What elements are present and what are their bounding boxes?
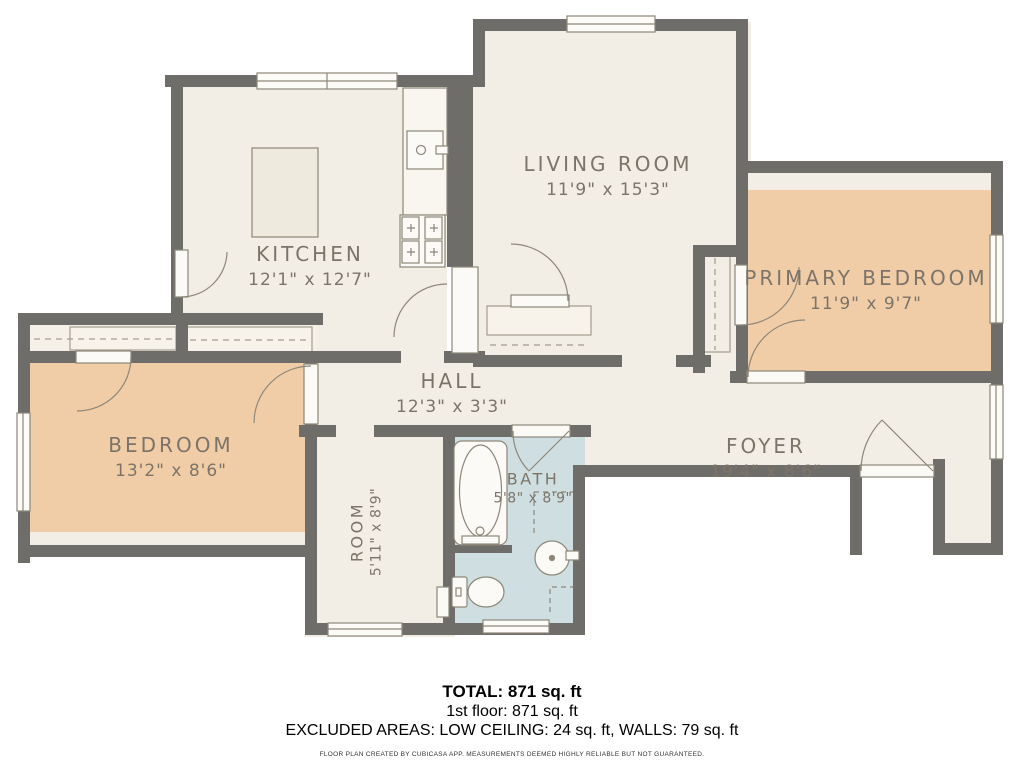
room-label-kitchen: KITCHEN 12'1" x 12'7" xyxy=(248,242,372,290)
kitchen-dims: 12'1" x 12'7" xyxy=(248,270,372,290)
room-dims: 5'11" x 8'9" xyxy=(369,488,385,576)
room-side-door xyxy=(437,587,449,617)
room-label-room: ROOM 5'11" x 8'9" xyxy=(348,488,385,576)
room-label-bath: BATH 5'8" x 8'9" xyxy=(494,470,573,507)
kitchen-island xyxy=(252,148,318,237)
hall-name: HALL xyxy=(396,369,508,393)
bedroom-window xyxy=(17,413,30,511)
kitchen-window xyxy=(257,73,397,89)
stove xyxy=(400,215,445,267)
room-window xyxy=(328,623,402,636)
floor-plan-page: KITCHEN 12'1" x 12'7" LIVING ROOM 11'9" … xyxy=(0,0,1024,768)
room-label-foyer: FOYER 19'4" x 8'6" xyxy=(710,434,822,482)
kitchen-name: KITCHEN xyxy=(248,242,372,266)
room-label-bedroom: BEDROOM 13'2" x 8'6" xyxy=(108,433,233,481)
bedroom-dims: 13'2" x 8'6" xyxy=(108,461,233,481)
living-room-window xyxy=(567,16,655,32)
living-closet-shelf xyxy=(487,306,591,335)
foyer-window xyxy=(990,385,1003,459)
living-room-name: LIVING ROOM xyxy=(523,152,692,176)
total-area-text: TOTAL: 871 sq. ft xyxy=(0,682,1024,702)
summary-footer: TOTAL: 871 sq. ft 1st floor: 871 sq. ft … xyxy=(0,682,1024,758)
disclaimer-text: FLOOR PLAN CREATED BY CUBICASA APP. MEAS… xyxy=(0,751,1024,758)
foyer-dims: 19'4" x 8'6" xyxy=(710,462,822,482)
primary-bedroom-name: PRIMARY BEDROOM xyxy=(744,266,987,290)
floor-area-text: 1st floor: 871 sq. ft xyxy=(0,703,1024,721)
kitchen-sink xyxy=(407,131,448,169)
bath-window xyxy=(483,620,549,633)
excluded-areas-text: EXCLUDED AREAS: LOW CEILING: 24 sq. ft, … xyxy=(0,722,1024,740)
primary-bedroom-window xyxy=(990,235,1003,323)
living-room-dims: 11'9" x 15'3" xyxy=(523,180,692,200)
hall-dims: 12'3" x 3'3" xyxy=(396,397,508,417)
primary-bedroom-dims: 11'9" x 9'7" xyxy=(744,294,987,314)
foyer-name: FOYER xyxy=(710,434,822,458)
room-label-primary-bedroom: PRIMARY BEDROOM 11'9" x 9'7" xyxy=(744,266,987,314)
bedroom-name: BEDROOM xyxy=(108,433,233,457)
bath-dims: 5'8" x 8'9" xyxy=(494,491,573,507)
toilet xyxy=(452,577,504,607)
floor-plan-drawing xyxy=(0,0,1024,768)
room-label-hall: HALL 12'3" x 3'3" xyxy=(396,369,508,417)
wall-kitchen-chase xyxy=(447,75,473,267)
bath-name: BATH xyxy=(494,470,573,489)
bath-stub-wall xyxy=(452,545,512,553)
room-name: ROOM xyxy=(348,488,367,576)
room-label-living-room: LIVING ROOM 11'9" x 15'3" xyxy=(523,152,692,200)
